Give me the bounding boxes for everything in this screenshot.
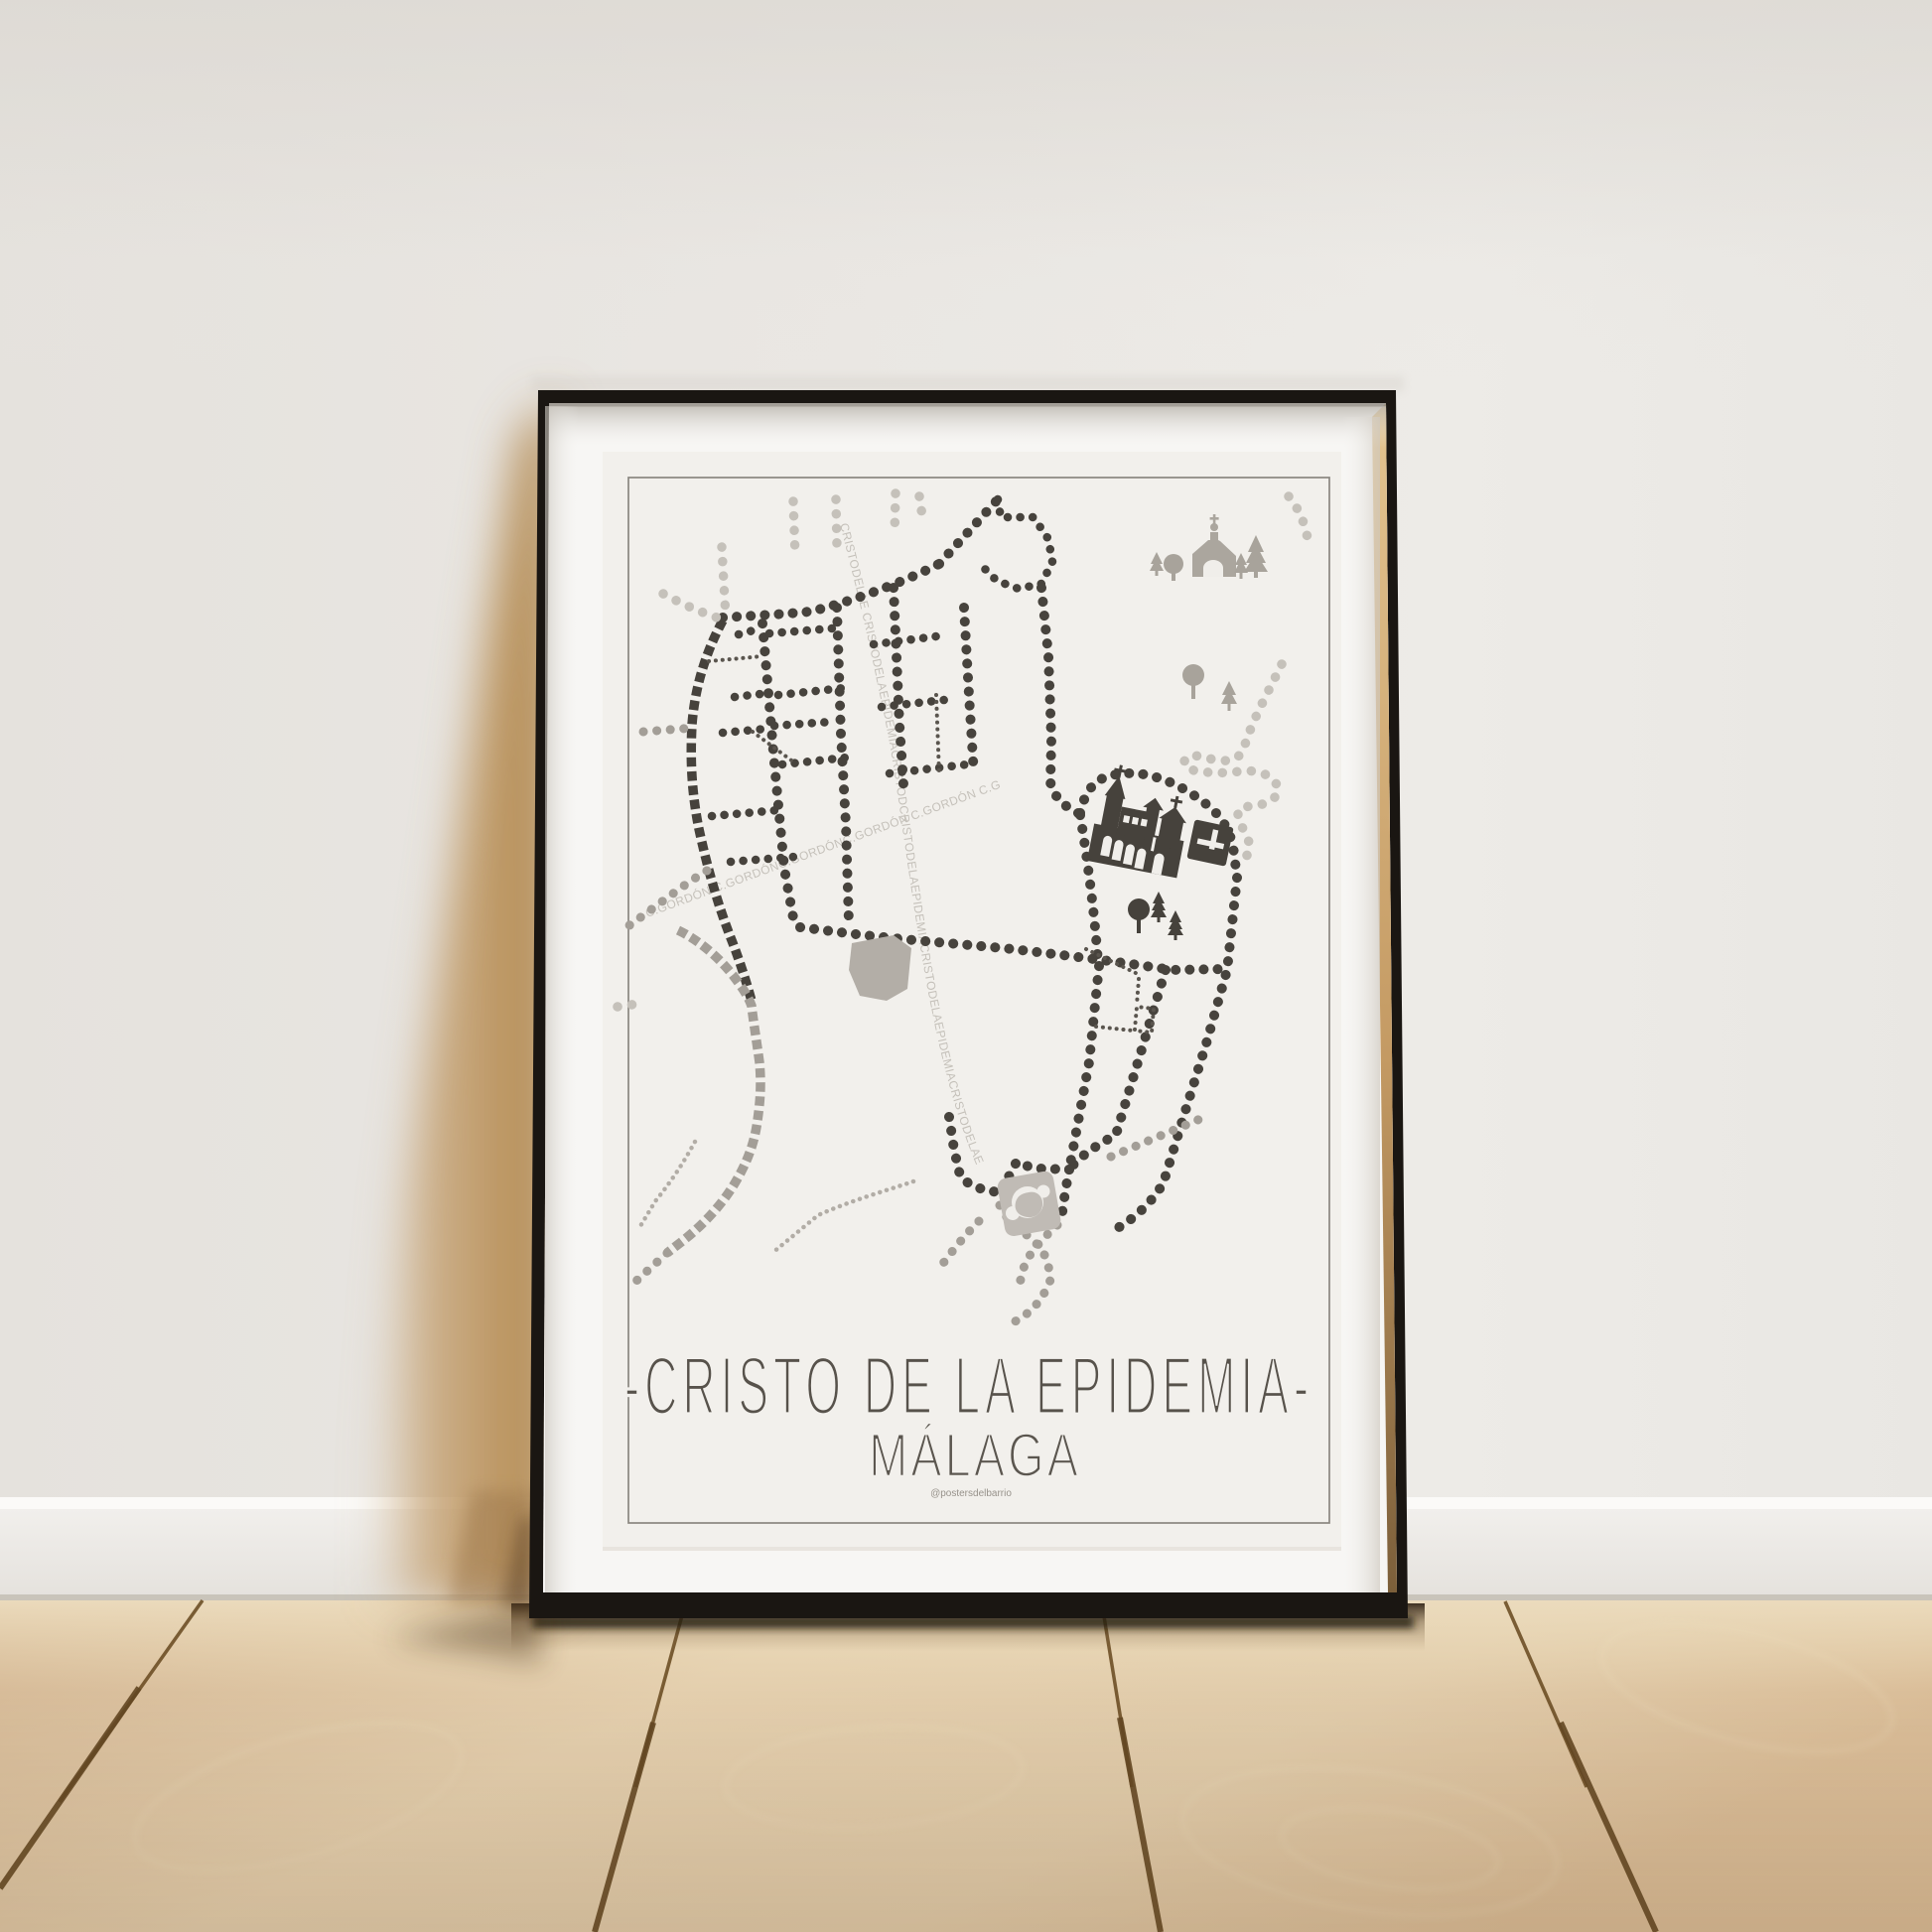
- svg-text:MÁLAGA: MÁLAGA: [869, 1421, 1081, 1490]
- svg-text:@postersdelbarrio: @postersdelbarrio: [930, 1488, 1012, 1499]
- svg-text:-CRISTO DE LA EPIDEMIA-: -CRISTO DE LA EPIDEMIA-: [624, 1340, 1313, 1433]
